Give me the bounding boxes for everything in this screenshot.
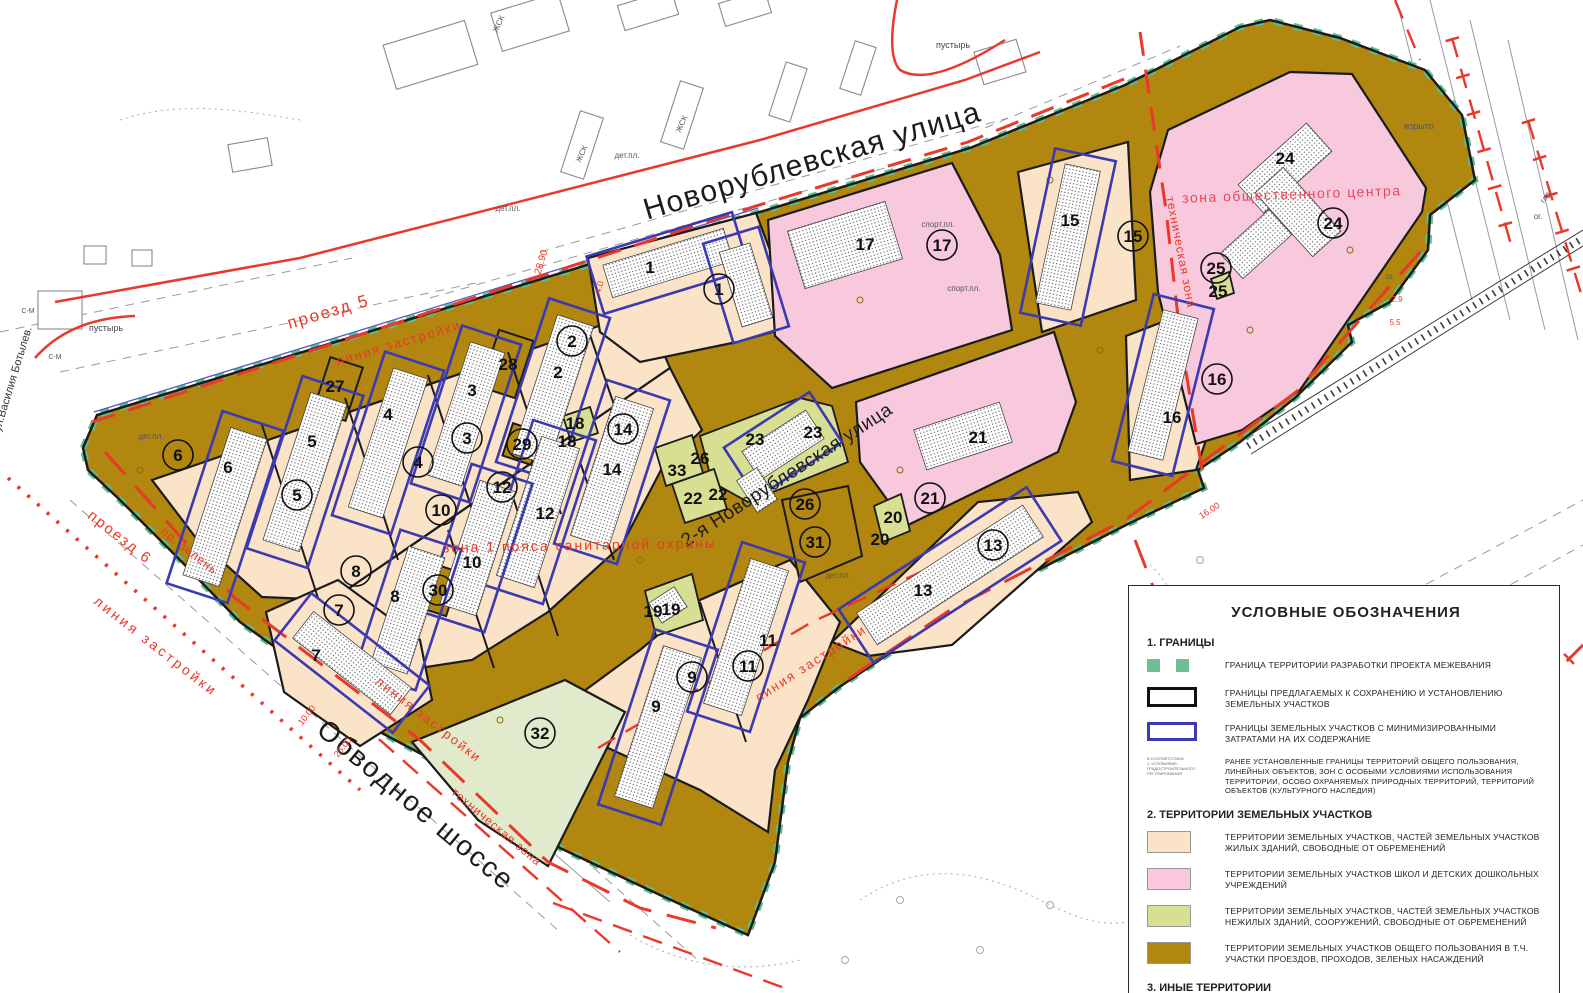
- map-label: пустырь: [89, 323, 123, 333]
- parcel-number: 2: [553, 363, 562, 382]
- parcel-number: 22: [684, 489, 703, 508]
- svg-text:19: 19: [662, 600, 681, 619]
- svg-text:12: 12: [493, 478, 512, 497]
- parcel-number: 1: [645, 258, 654, 277]
- parcel-number: 10: [463, 553, 482, 572]
- parcel-number: 8: [390, 587, 399, 606]
- legend-title: УСЛОВНЫЕ ОБОЗНАЧЕНИЯ: [1147, 604, 1545, 621]
- map-label: дет.пл.: [495, 204, 520, 213]
- legend-item-kept-boundaries: ГРАНИЦЫ ПРЕДЛАГАЕМЫХ К СОХРАНЕНИЮ И УСТА…: [1147, 686, 1545, 712]
- map-label: ог.: [1386, 272, 1395, 281]
- parcel-number: 4: [383, 405, 393, 424]
- parcel-number: 21: [969, 428, 988, 447]
- parcel-number: 11: [759, 631, 777, 650]
- svg-text:21: 21: [969, 428, 988, 447]
- svg-text:11: 11: [759, 631, 777, 650]
- svg-text:14: 14: [614, 420, 633, 439]
- nonresidential-swatch: [1147, 905, 1191, 927]
- svg-text:7: 7: [311, 646, 320, 665]
- svg-text:17: 17: [856, 235, 875, 254]
- map-label: изрыто: [1404, 121, 1434, 131]
- svg-text:1: 1: [645, 258, 654, 277]
- svg-text:14: 14: [603, 460, 622, 479]
- parcel-number: 24: [1276, 149, 1295, 168]
- svg-text:11: 11: [739, 657, 757, 676]
- map-label: 2.9: [1391, 295, 1403, 304]
- parcel-number: 15: [1061, 211, 1080, 230]
- svg-text:12: 12: [536, 504, 555, 523]
- parcel-number: 23: [804, 423, 823, 442]
- svg-text:16: 16: [1208, 370, 1227, 389]
- residential-swatch: [1147, 831, 1191, 853]
- plan-page: 1122334455667788991010111112121313141415…: [0, 0, 1583, 993]
- svg-text:22: 22: [684, 489, 703, 508]
- parcel-number: 5: [307, 432, 316, 451]
- black-boundary-swatch: [1147, 687, 1197, 707]
- svg-text:23: 23: [804, 423, 823, 442]
- map-label: дет.пл.: [614, 151, 639, 160]
- svg-text:3: 3: [462, 429, 471, 448]
- svg-text:9: 9: [687, 668, 696, 687]
- parcel-number: 22: [709, 485, 728, 504]
- svg-text:20: 20: [884, 508, 903, 527]
- svg-text:18: 18: [566, 414, 585, 433]
- svg-text:3: 3: [467, 381, 476, 400]
- parcel-number: 25: [1209, 282, 1228, 301]
- parcel-number: 16: [1163, 408, 1182, 427]
- map-label: С-М: [48, 354, 61, 361]
- svg-text:10: 10: [463, 553, 482, 572]
- blue-boundary-swatch: [1147, 722, 1197, 741]
- svg-text:8: 8: [390, 587, 399, 606]
- svg-text:22: 22: [709, 485, 728, 504]
- map-label: С-М: [21, 308, 34, 315]
- legend-section-other: 3. ИНЫЕ ТЕРРИТОРИИ: [1147, 982, 1545, 993]
- green-squares-swatch: [1147, 658, 1225, 677]
- svg-text:1: 1: [714, 280, 723, 299]
- svg-text:8: 8: [351, 562, 360, 581]
- map-label: 5.5: [1389, 318, 1401, 327]
- svg-text:2: 2: [567, 332, 576, 351]
- legend-section-borders: 1. ГРАНИЦЫ: [1147, 637, 1545, 649]
- legend-item-residential: ТЕРРИТОРИИ ЗЕМЕЛЬНЫХ УЧАСТКОВ, ЧАСТЕЙ ЗЕ…: [1147, 830, 1545, 858]
- svg-text:4: 4: [413, 453, 423, 472]
- svg-text:23: 23: [746, 430, 765, 449]
- parcel-number: 28: [499, 355, 518, 374]
- svg-text:30: 30: [429, 581, 448, 600]
- svg-text:5: 5: [307, 432, 316, 451]
- svg-text:5: 5: [292, 486, 301, 505]
- svg-text:24: 24: [1276, 149, 1295, 168]
- svg-text:6: 6: [173, 446, 182, 465]
- parcel-number: 12: [536, 504, 555, 523]
- parcel-number: 33: [668, 461, 687, 480]
- parcel-number: 26: [691, 449, 710, 468]
- svg-text:26: 26: [691, 449, 710, 468]
- svg-text:27: 27: [326, 377, 345, 396]
- svg-text:25: 25: [1207, 259, 1226, 278]
- map-label: спорт.пл.: [921, 220, 954, 229]
- svg-text:6: 6: [223, 458, 232, 477]
- parcel-number: 23: [746, 430, 765, 449]
- legend-item-project-boundary: ГРАНИЦА ТЕРРИТОРИИ РАЗРАБОТКИ ПРОЕКТА МЕ…: [1147, 658, 1545, 677]
- parcel-number: 7: [311, 646, 320, 665]
- parcel-number: 20: [871, 530, 890, 549]
- parcel-number: 13: [914, 581, 933, 600]
- svg-text:17: 17: [933, 236, 952, 255]
- legend-panel: УСЛОВНЫЕ ОБОЗНАЧЕНИЯ 1. ГРАНИЦЫ ГРАНИЦА …: [1128, 585, 1560, 993]
- tiny-text-swatch: В СООТВЕТСТВИИ С УСЛОВИЯМИ ГРАДОСТРОИТЕЛ…: [1147, 755, 1225, 776]
- map-label: дет.пл.: [825, 571, 850, 580]
- legend-section-territories: 2. ТЕРРИТОРИИ ЗЕМЕЛЬНЫХ УЧАСТКОВ: [1147, 809, 1545, 821]
- svg-text:26: 26: [796, 495, 815, 514]
- svg-text:18: 18: [558, 432, 577, 451]
- svg-text:2: 2: [553, 363, 562, 382]
- parcel-number: 14: [603, 460, 622, 479]
- map-label: пустырь: [936, 40, 970, 50]
- svg-text:25: 25: [1209, 282, 1228, 301]
- svg-text:20: 20: [871, 530, 890, 549]
- svg-text:33: 33: [668, 461, 687, 480]
- svg-text:24: 24: [1324, 214, 1343, 233]
- parcel-number: 20: [884, 508, 903, 527]
- parcel-number: 3: [467, 381, 476, 400]
- svg-text:7: 7: [334, 601, 343, 620]
- parcel-number: 27: [326, 377, 345, 396]
- schools-swatch: [1147, 868, 1191, 890]
- svg-text:29: 29: [513, 435, 532, 454]
- parcel-number: 17: [856, 235, 875, 254]
- svg-text:15: 15: [1061, 211, 1080, 230]
- svg-text:10: 10: [432, 501, 451, 520]
- parcel-number: 19: [662, 600, 681, 619]
- legend-item-schools: ТЕРРИТОРИИ ЗЕМЕЛЬНЫХ УЧАСТКОВ ШКОЛ И ДЕТ…: [1147, 867, 1545, 895]
- svg-text:16: 16: [1163, 408, 1182, 427]
- parcel-number: 18: [558, 432, 577, 451]
- svg-text:28: 28: [499, 355, 518, 374]
- svg-text:32: 32: [531, 724, 550, 743]
- svg-text:31: 31: [806, 533, 825, 552]
- parcel-number: 18: [566, 414, 585, 433]
- map-label: спорт.пл.: [947, 284, 980, 293]
- svg-text:13: 13: [984, 536, 1003, 555]
- svg-text:21: 21: [921, 489, 940, 508]
- parcel-number: 9: [651, 697, 660, 716]
- svg-text:4: 4: [383, 405, 393, 424]
- parcel-number: 19: [644, 602, 663, 621]
- svg-text:13: 13: [914, 581, 933, 600]
- common-use-swatch: [1147, 942, 1191, 964]
- legend-item-previous-boundaries: В СООТВЕТСТВИИ С УСЛОВИЯМИ ГРАДОСТРОИТЕЛ…: [1147, 755, 1545, 796]
- legend-item-nonresidential: ТЕРРИТОРИИ ЗЕМЕЛЬНЫХ УЧАСТКОВ, ЧАСТЕЙ ЗЕ…: [1147, 904, 1545, 932]
- legend-item-common-use: ТЕРРИТОРИИ ЗЕМЕЛЬНЫХ УЧАСТКОВ ОБЩЕГО ПОЛ…: [1147, 941, 1545, 969]
- map-label: дет.пл.: [138, 432, 163, 441]
- svg-text:19: 19: [644, 602, 663, 621]
- svg-text:15: 15: [1124, 227, 1143, 246]
- legend-item-minimized-boundaries: ГРАНИЦЫ ЗЕМЕЛЬНЫХ УЧАСТКОВ С МИНИМИЗИРОВ…: [1147, 721, 1545, 746]
- map-label: ог.: [1534, 212, 1543, 221]
- parcel-number: 6: [223, 458, 232, 477]
- svg-text:9: 9: [651, 697, 660, 716]
